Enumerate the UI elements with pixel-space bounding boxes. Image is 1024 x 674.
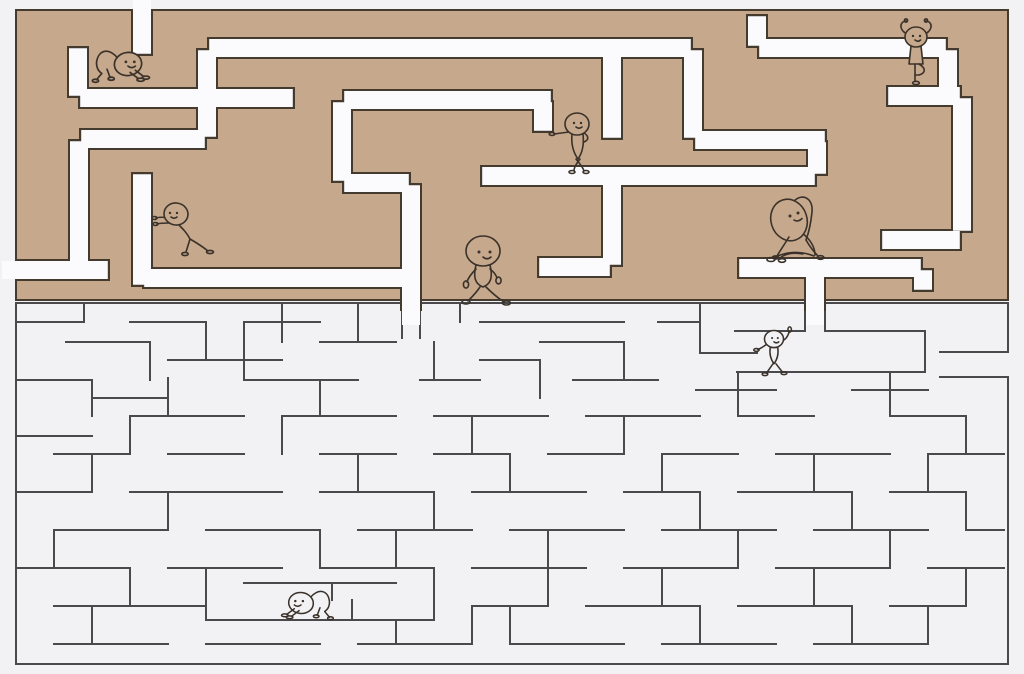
maze-artwork: [0, 0, 1024, 674]
maze-poster: [0, 0, 1024, 674]
top-maze: [2, 0, 1008, 325]
